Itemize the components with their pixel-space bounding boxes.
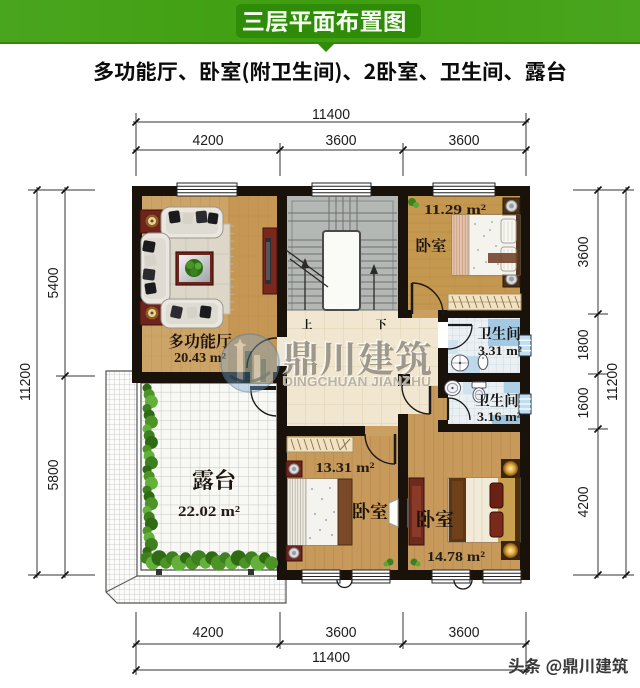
svg-text:4200: 4200 [576,487,592,518]
svg-text:卧室: 卧室 [352,498,388,524]
svg-text:卫生间: 卫生间 [477,323,521,344]
svg-text:14.78 m²: 14.78 m² [427,550,485,565]
svg-text:3600: 3600 [326,625,357,641]
svg-text:11200: 11200 [18,363,34,401]
svg-text:11400: 11400 [312,650,350,666]
svg-text:多功能厅: 多功能厅 [168,329,232,352]
svg-text:多功能厅、卧室(附卫生间)、2卧室、卫生间、露台: 多功能厅、卧室(附卫生间)、2卧室、卫生间、露台 [93,55,567,85]
svg-text:露台: 露台 [192,464,237,495]
svg-text:卧室: 卧室 [416,505,454,532]
svg-text:11.29 m²: 11.29 m² [424,203,486,218]
svg-text:3.31 m²: 3.31 m² [478,344,522,358]
svg-text:5400: 5400 [46,268,62,299]
svg-text:22.02 m²: 22.02 m² [178,504,241,520]
svg-text:1800: 1800 [576,330,592,361]
svg-text:11200: 11200 [605,363,621,401]
svg-text:头条 @鼎川建筑: 头条 @鼎川建筑 [508,653,629,677]
svg-text:三层平面布置图: 三层平面布置图 [242,3,407,37]
svg-text:13.31 m²: 13.31 m² [316,461,375,476]
svg-text:3600: 3600 [576,237,592,268]
svg-text:卫生间: 卫生间 [475,390,519,411]
svg-text:3600: 3600 [449,625,480,641]
svg-text:3.16 m²: 3.16 m² [477,410,521,424]
svg-text:11400: 11400 [312,107,350,123]
svg-text:20.43 m²: 20.43 m² [174,350,226,365]
svg-text:5800: 5800 [46,460,62,491]
svg-text:DINGCHUAN JIANZHU: DINGCHUAN JIANZHU [283,375,431,389]
svg-text:4200: 4200 [193,625,224,641]
svg-text:3600: 3600 [449,133,480,149]
svg-text:4200: 4200 [193,133,224,149]
svg-text:3600: 3600 [326,133,357,149]
svg-text:1600: 1600 [576,388,592,419]
svg-text:卧室: 卧室 [415,234,446,256]
